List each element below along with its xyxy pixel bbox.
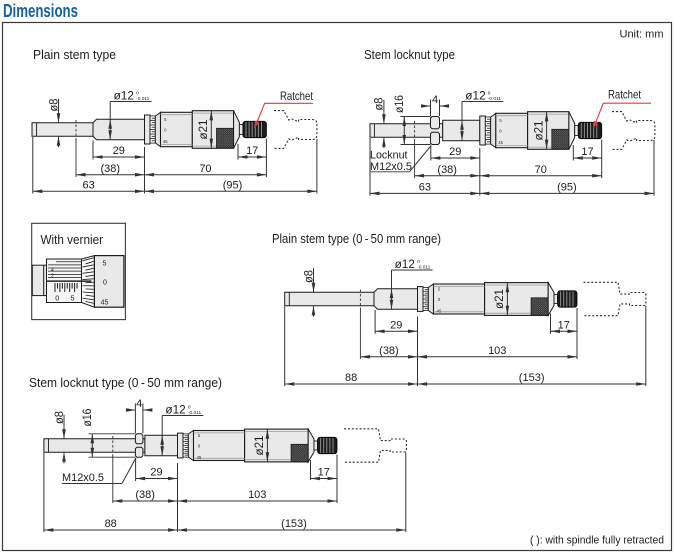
svg-text:ø16: ø16 bbox=[80, 408, 94, 426]
svg-text:29: 29 bbox=[449, 146, 461, 158]
svg-text:(153): (153) bbox=[519, 372, 545, 384]
svg-text:29: 29 bbox=[113, 145, 125, 157]
svg-text:(38): (38) bbox=[379, 345, 399, 357]
svg-text:Plain stem type: Plain stem type bbox=[33, 48, 116, 62]
svg-text:45: 45 bbox=[101, 300, 109, 307]
svg-text:103: 103 bbox=[248, 489, 266, 501]
svg-text:ø21: ø21 bbox=[492, 289, 506, 309]
svg-text:ø12: ø12 bbox=[465, 88, 485, 102]
svg-text:ø21: ø21 bbox=[531, 120, 545, 140]
svg-text:ø8: ø8 bbox=[372, 97, 386, 110]
svg-text:17: 17 bbox=[581, 146, 593, 158]
svg-text:0: 0 bbox=[488, 91, 491, 97]
svg-text:88: 88 bbox=[105, 518, 117, 530]
svg-text:0: 0 bbox=[55, 294, 59, 303]
svg-text:M12x0.5: M12x0.5 bbox=[370, 161, 412, 173]
svg-text:Dimensions: Dimensions bbox=[3, 1, 78, 21]
svg-text:29: 29 bbox=[150, 467, 162, 479]
svg-text:ø8: ø8 bbox=[46, 98, 60, 111]
svg-text:4: 4 bbox=[51, 267, 54, 273]
svg-text:45: 45 bbox=[437, 309, 442, 314]
svg-text:(38): (38) bbox=[100, 163, 120, 175]
svg-text:ø8: ø8 bbox=[52, 411, 66, 424]
svg-text:0: 0 bbox=[188, 405, 191, 411]
svg-text:ø21: ø21 bbox=[196, 119, 210, 139]
svg-text:Plain stem type (0 - 50 mm ran: Plain stem type (0 - 50 mm range) bbox=[272, 232, 441, 246]
svg-text:ø12: ø12 bbox=[165, 402, 185, 416]
svg-text:70: 70 bbox=[199, 163, 211, 175]
svg-text:70: 70 bbox=[535, 164, 547, 176]
svg-text:103: 103 bbox=[488, 345, 506, 357]
svg-text:( ): with spindle fully retrac: ( ): with spindle fully retracted bbox=[530, 535, 664, 547]
svg-text:17: 17 bbox=[246, 145, 258, 157]
svg-text:ø8: ø8 bbox=[301, 270, 315, 283]
svg-text:0: 0 bbox=[136, 91, 139, 97]
svg-text:88: 88 bbox=[345, 372, 357, 384]
svg-text:63: 63 bbox=[83, 180, 95, 192]
svg-text:Unit: mm: Unit: mm bbox=[620, 29, 664, 41]
svg-text:5: 5 bbox=[103, 261, 107, 268]
svg-text:With vernier: With vernier bbox=[41, 233, 104, 247]
svg-text:-0.011: -0.011 bbox=[417, 264, 431, 270]
svg-text:45: 45 bbox=[163, 139, 168, 144]
svg-text:45: 45 bbox=[197, 455, 202, 460]
svg-text:(153): (153) bbox=[281, 518, 307, 530]
svg-text:(38): (38) bbox=[135, 489, 155, 501]
svg-text:Stem locknut type (0 - 50 mm r: Stem locknut type (0 - 50 mm range) bbox=[29, 376, 222, 390]
svg-text:0: 0 bbox=[417, 259, 420, 265]
svg-text:-0.011: -0.011 bbox=[136, 96, 150, 102]
svg-text:17: 17 bbox=[318, 467, 330, 479]
svg-text:29: 29 bbox=[390, 320, 402, 332]
svg-text:17: 17 bbox=[558, 320, 570, 332]
svg-text:(95): (95) bbox=[223, 180, 243, 192]
svg-text:-0.011: -0.011 bbox=[188, 410, 202, 416]
svg-text:ø21: ø21 bbox=[252, 435, 266, 455]
svg-text:M12x0.5: M12x0.5 bbox=[62, 472, 104, 484]
svg-text:4: 4 bbox=[136, 398, 142, 410]
svg-text:ø12: ø12 bbox=[395, 257, 415, 271]
svg-text:5: 5 bbox=[71, 294, 75, 303]
svg-text:0: 0 bbox=[103, 280, 107, 287]
svg-text:Stem locknut type: Stem locknut type bbox=[364, 48, 455, 62]
svg-text:(38): (38) bbox=[437, 164, 457, 176]
svg-text:Ratchet: Ratchet bbox=[280, 89, 314, 103]
svg-text:ø16: ø16 bbox=[392, 95, 406, 113]
svg-text:-0.011: -0.011 bbox=[488, 96, 502, 102]
svg-text:(95): (95) bbox=[557, 182, 577, 194]
svg-text:2: 2 bbox=[51, 274, 54, 280]
svg-text:45: 45 bbox=[498, 140, 503, 145]
svg-text:ø12: ø12 bbox=[114, 88, 134, 102]
svg-text:Ratchet: Ratchet bbox=[608, 88, 642, 102]
svg-text:63: 63 bbox=[419, 182, 431, 194]
svg-text:4: 4 bbox=[432, 94, 438, 106]
